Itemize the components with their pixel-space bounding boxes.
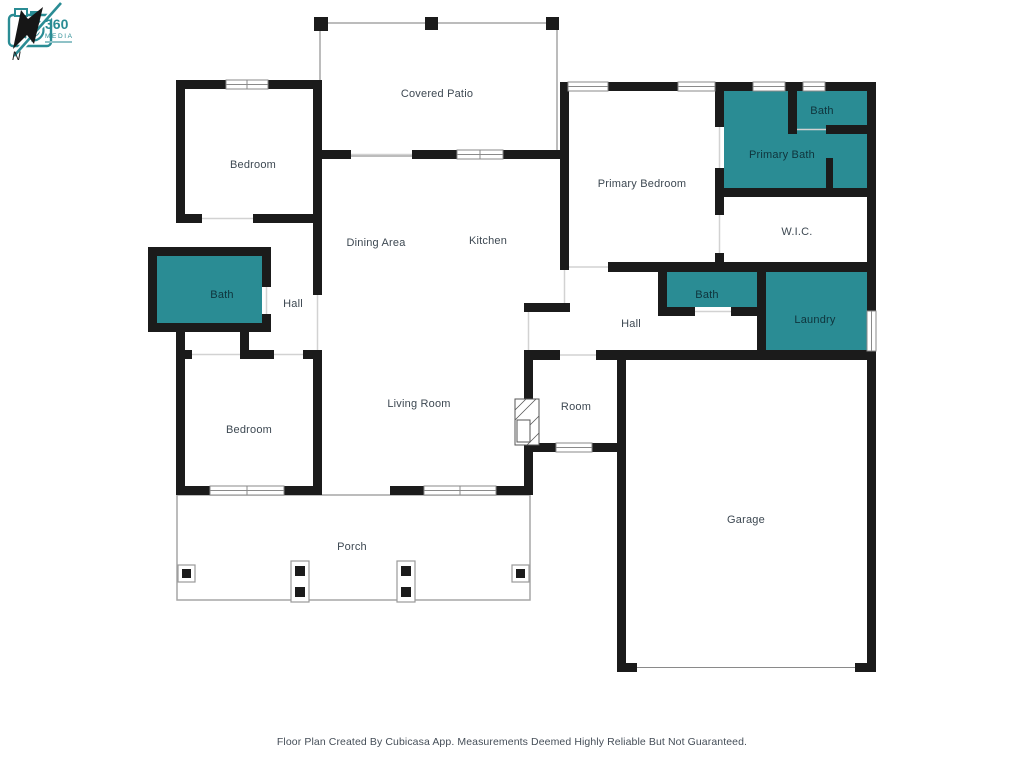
room-label-bedroom-bottom-left: Bedroom xyxy=(226,424,272,436)
patio-posts xyxy=(314,17,559,31)
room-label-bath-left: Bath xyxy=(210,289,233,301)
north-arrow-icon xyxy=(13,7,43,49)
room-label-porch: Porch xyxy=(337,541,367,553)
room-label-bath-top-right: Bath xyxy=(810,105,833,117)
room-label-room: Room xyxy=(561,401,591,413)
room-label-wic: W.I.C. xyxy=(781,226,812,238)
compass: N xyxy=(0,0,52,64)
room-label-covered-patio: Covered Patio xyxy=(401,88,473,100)
compass-label: N xyxy=(12,49,21,63)
room-label-bath-middle: Bath xyxy=(695,289,718,301)
room-label-garage: Garage xyxy=(727,514,765,526)
room-label-dining-area: Dining Area xyxy=(346,237,405,249)
room-label-laundry: Laundry xyxy=(794,314,835,326)
room-label-hall-right: Hall xyxy=(621,318,641,330)
room-label-hall-left: Hall xyxy=(283,298,303,310)
fireplace xyxy=(515,399,539,445)
room-label-primary-bedroom: Primary Bedroom xyxy=(598,178,687,190)
porch-posts xyxy=(178,561,529,602)
laundry-fill xyxy=(759,270,867,350)
footer-disclaimer: Floor Plan Created By Cubicasa App. Meas… xyxy=(0,736,1024,748)
floor-plan: Covered PatioBedroomDining AreaKitchenBa… xyxy=(0,0,1024,768)
room-label-living-room: Living Room xyxy=(387,398,450,410)
room-label-bedroom-top-left: Bedroom xyxy=(230,159,276,171)
floor-plan-drawing xyxy=(0,0,1024,768)
garage-door xyxy=(637,663,855,672)
room-label-primary-bath: Primary Bath xyxy=(749,149,815,161)
room-label-kitchen: Kitchen xyxy=(469,235,507,247)
